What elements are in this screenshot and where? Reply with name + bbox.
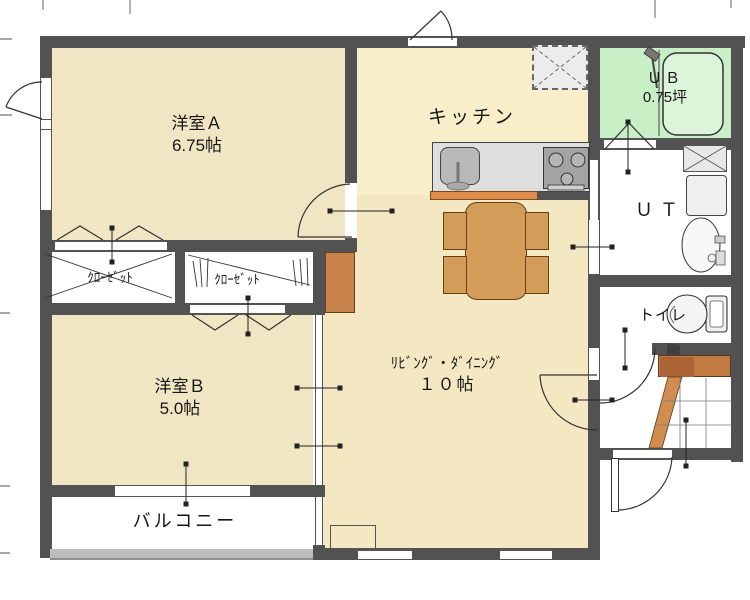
genkan-step-diagonal [649, 377, 682, 448]
unit-bath-name: ＵＢ [601, 70, 729, 89]
room-label-living-dining: ﾘﾋﾞﾝｸﾞ・ﾀﾞｲﾆﾝｸﾞ １０帖 [347, 354, 547, 396]
unit-bath-size: 0.75坪 [601, 89, 729, 108]
western-b-size: 5.0帖 [80, 398, 280, 420]
floor-plan: 洋室Ａ 6.75帖 キッチン ＵＢ 0.75坪 ＵＴ トイレ ｸﾛｰｾﾞｯﾄ ｸ… [0, 0, 750, 600]
wall-ut-bottom [600, 275, 743, 287]
roomA-window [40, 78, 52, 210]
room-label-balcony: バルコニー [105, 510, 265, 533]
dining-table [465, 202, 527, 300]
dining-chair [443, 212, 467, 250]
balcony-name: バルコニー [105, 510, 265, 533]
room-label-closet-right: ｸﾛｰｾﾞｯﾄ [187, 272, 287, 289]
living-door-opening [589, 348, 599, 380]
wall-closet-divider [175, 252, 185, 303]
room-label-utility: ＵＴ [610, 199, 710, 222]
kitchen-counter-edge [430, 191, 538, 200]
western-b-name: 洋室Ｂ [80, 376, 280, 398]
kitchen-ut-passage [589, 220, 599, 274]
living-window-left [358, 550, 412, 560]
basin-cabinet [716, 251, 725, 265]
basin-knob [708, 254, 716, 262]
toilet-name: トイレ [613, 306, 713, 326]
living-dining-size: １０帖 [347, 374, 547, 396]
wash-basin [682, 218, 720, 272]
kitchen-top-door-opening [408, 37, 457, 47]
dining-chair [525, 212, 549, 250]
basin-faucet [715, 236, 725, 243]
entrance-door-leaf [611, 458, 619, 512]
kitchen-sink [440, 147, 480, 185]
ub-door-opening [604, 139, 656, 149]
closetA-door-opening [55, 241, 167, 251]
dining-chair [525, 256, 549, 294]
living-furniture [330, 525, 376, 549]
balcony-railing [50, 549, 313, 560]
closet-right-name: ｸﾛｰｾﾞｯﾄ [187, 272, 287, 289]
wall-closet-right [313, 240, 325, 315]
roomB-balcony-window [115, 485, 250, 497]
hall-genkan-door-swing [600, 348, 655, 403]
refrigerator-space [532, 45, 588, 90]
wall-top [40, 36, 745, 48]
utility-name: ＵＴ [610, 199, 710, 222]
balcony-side-window [315, 497, 323, 545]
wall-living-bottom [313, 548, 600, 560]
wall-balcony-right-upper [313, 485, 325, 497]
western-a-name: 洋室Ａ [97, 113, 297, 135]
roomA-door-opening [346, 183, 356, 238]
room-label-unit-bath: ＵＢ 0.75坪 [601, 70, 729, 108]
dining-chair [443, 256, 467, 294]
washing-machine-pan [683, 145, 727, 172]
genkan-tile-grid [657, 378, 731, 448]
room-label-western-a: 洋室Ａ 6.75帖 [97, 113, 297, 157]
living-dining-name: ﾘﾋﾞﾝｸﾞ・ﾀﾞｲﾆﾝｸﾞ [347, 354, 547, 374]
room-label-toilet: トイレ [613, 306, 713, 326]
entrance-opening [613, 449, 672, 459]
storage-cabinet [325, 252, 355, 313]
entrance-door-swing [619, 457, 672, 510]
genkan-step-dark [660, 357, 694, 377]
room-label-kitchen: キッチン [392, 106, 552, 131]
western-a-size: 6.75帖 [97, 135, 297, 157]
kitchen-name: キッチン [392, 106, 552, 131]
kitchen-stove [543, 147, 589, 189]
wall-kitchen-right [588, 36, 600, 560]
roomA-window-swing [6, 82, 42, 119]
kitchen-ut-sliding-door [589, 160, 599, 220]
closetB-door-opening [190, 304, 285, 314]
room-label-western-b: 洋室Ｂ 5.0帖 [80, 376, 280, 420]
living-window-right [500, 550, 552, 560]
roomB-living-sliding-door [315, 315, 323, 485]
wall-roomA-kitchen-upper [345, 48, 357, 183]
wall-right [731, 36, 743, 462]
closet-left-name: ｸﾛｰｾﾞｯﾄ [60, 270, 160, 287]
room-label-closet-left: ｸﾛｰｾﾞｯﾄ [60, 270, 160, 287]
roomA-window-mullion [40, 119, 52, 130]
wall-toilet-bottom [652, 343, 743, 355]
